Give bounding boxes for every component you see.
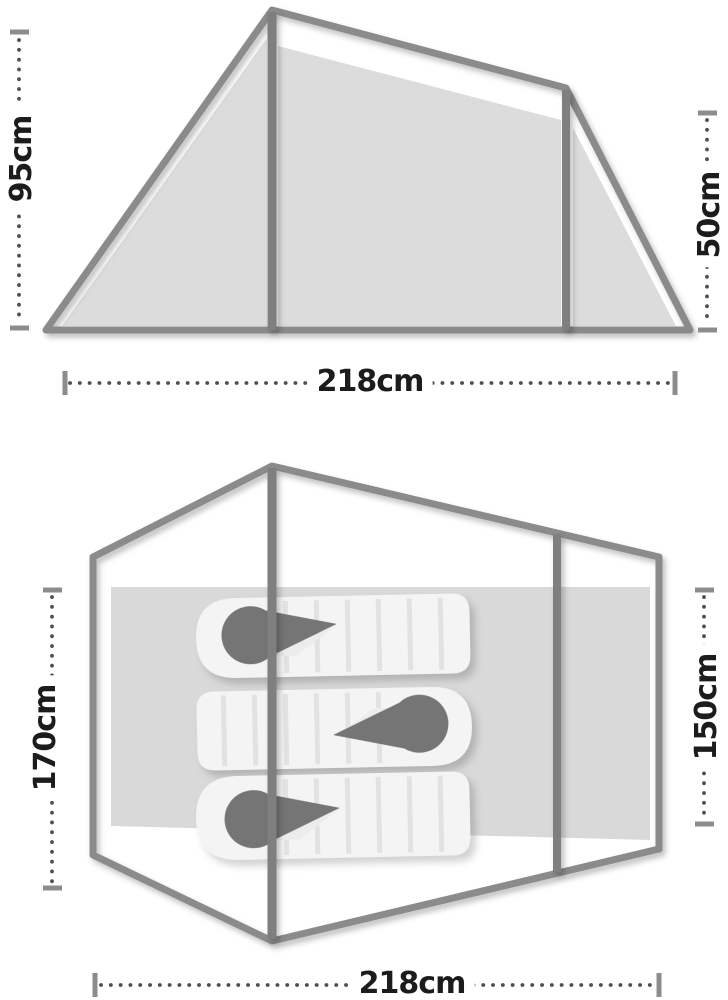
side-middle-panel (278, 46, 561, 326)
side-left-panel (62, 38, 267, 326)
side-view (46, 10, 690, 330)
tent-dimensions-diagram: 95cm 50cm 218cm 170cm 150cm 218cm (0, 0, 728, 1000)
side-right-panel (573, 128, 676, 326)
floor-length-label: 218cm (350, 967, 475, 1000)
side-length-label: 218cm (308, 365, 433, 399)
rear-height-label: 50cm (693, 163, 727, 268)
peak-height-label: 95cm (5, 107, 39, 212)
diagram-canvas (0, 0, 728, 1000)
floor-left-width-label: 170cm (29, 676, 63, 801)
floor-plan (93, 466, 659, 941)
sleeping-bag-2 (196, 686, 473, 771)
sleeping-bag-1 (195, 593, 471, 679)
floor-right-width-label: 150cm (690, 645, 724, 770)
sleeping-bag-3 (195, 771, 471, 861)
